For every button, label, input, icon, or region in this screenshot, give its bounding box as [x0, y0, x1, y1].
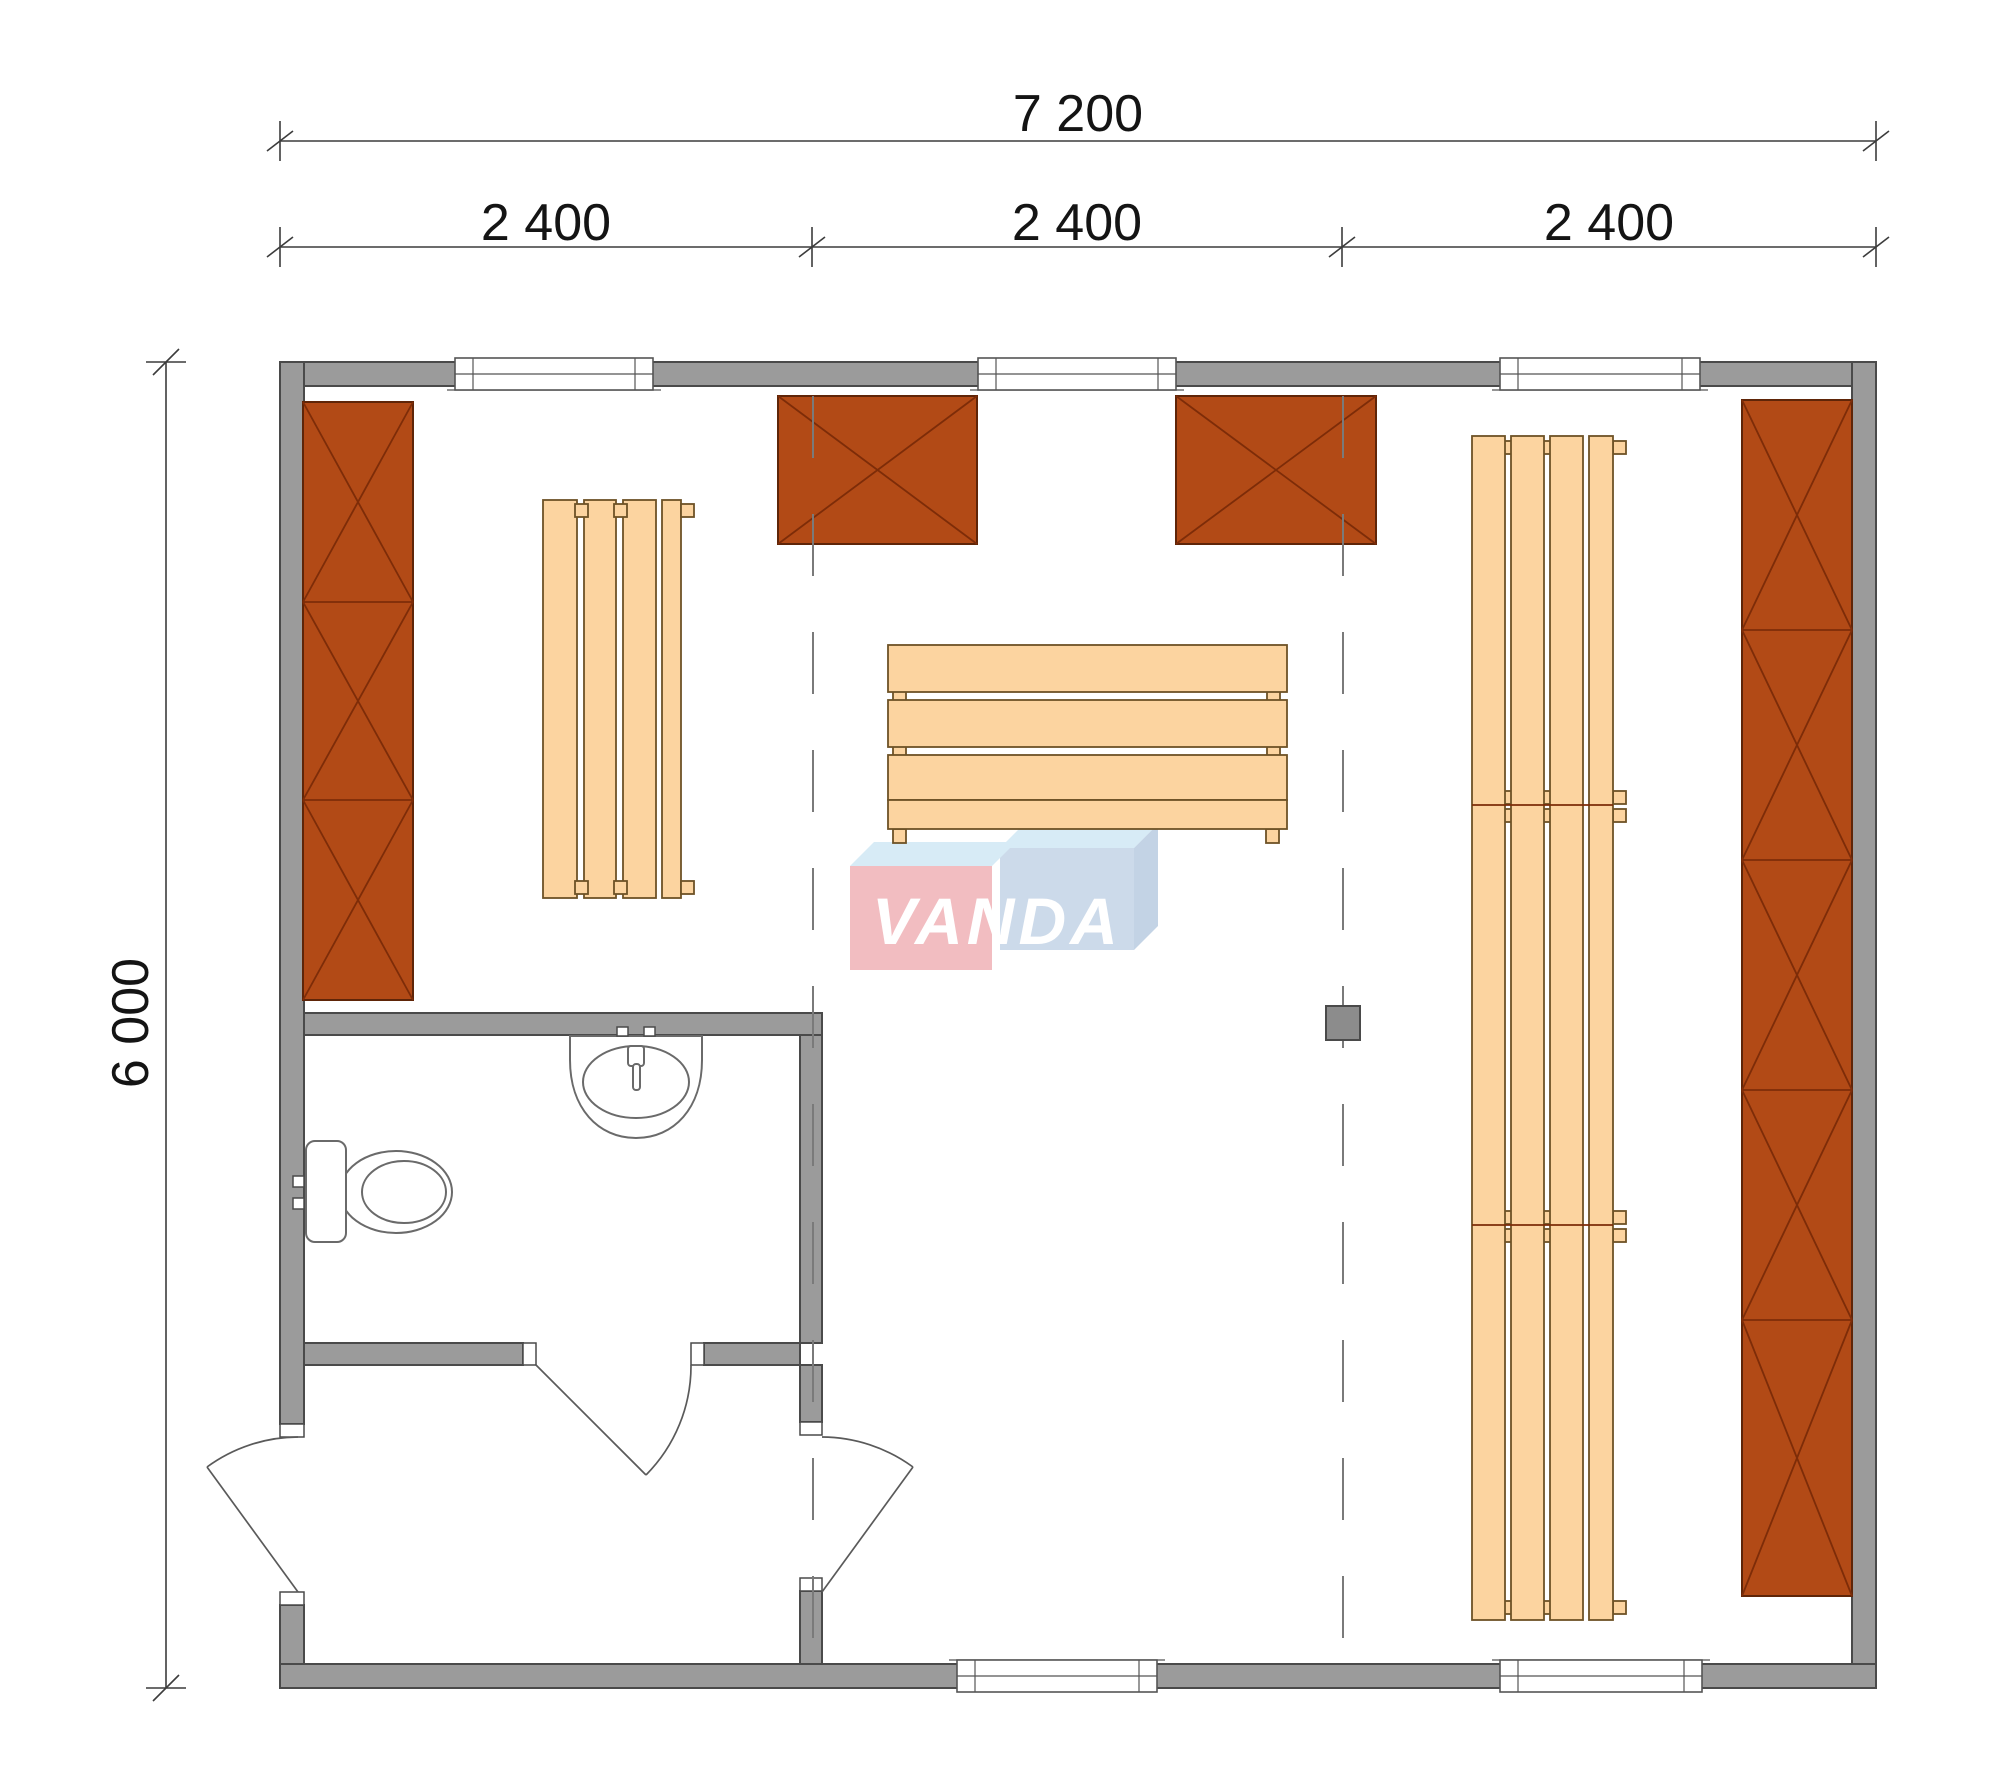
wall-left-upper: [280, 362, 304, 1424]
door-jamb: [523, 1343, 536, 1365]
sink-icon: [570, 1027, 702, 1138]
bathroom-wall-bottom-right: [704, 1343, 800, 1365]
bench-left: [543, 500, 694, 898]
wardrobe-top-left: [778, 396, 977, 544]
dimension-left-total: 6 000: [102, 349, 186, 1701]
dimension-label-total-width: 7 200: [1013, 85, 1143, 143]
dimension-top-total: 7 200: [267, 85, 1889, 161]
wall-left-lower: [280, 1605, 304, 1664]
dimension-label-total-height: 6 000: [102, 958, 160, 1088]
floor-plan-page: 7 200 2 400 2 400 2 400 6 000 VANDA: [0, 0, 2000, 1786]
dimension-modules: 2 400 2 400 2 400: [267, 194, 1889, 267]
window-top-left: [447, 358, 661, 390]
toilet-icon: [293, 1141, 452, 1242]
door-jamb: [800, 1578, 822, 1591]
wall-right: [1852, 362, 1876, 1664]
door-jamb: [691, 1343, 704, 1365]
dimension-label-module-2: 2 400: [1012, 194, 1142, 252]
door-jamb: [800, 1422, 822, 1435]
bathroom-wall-right: [800, 1035, 822, 1343]
hall-wall-right-lower: [800, 1591, 822, 1664]
bathroom-door: [536, 1365, 691, 1475]
window-bottom-right: [1492, 1660, 1710, 1692]
bench-middle: [888, 645, 1287, 843]
window-bottom-middle: [949, 1660, 1165, 1692]
hall-wall-right-upper: [800, 1365, 822, 1422]
interior-door-right: [822, 1437, 913, 1592]
window-top-middle: [970, 358, 1184, 390]
dimension-label-module-1: 2 400: [481, 194, 611, 252]
entrance-door-left: [207, 1437, 298, 1592]
bench-right: [1472, 436, 1626, 1620]
door-jamb: [280, 1592, 304, 1605]
door-jamb: [280, 1424, 304, 1437]
bathroom-wall-bottom-left: [304, 1343, 523, 1365]
floor-plan-drawing: 7 200 2 400 2 400 2 400 6 000 VANDA: [0, 0, 2000, 1786]
logo-block-van-bevel: [850, 842, 1016, 866]
wardrobe-top-right: [1176, 396, 1376, 544]
wardrobe-right-column: [1742, 400, 1852, 1596]
bathroom-wall-top: [304, 1013, 822, 1035]
wardrobe-left-column: [303, 402, 413, 1000]
stove-marker: [1326, 1006, 1360, 1040]
vanda-logo-text: VANDA: [872, 884, 1122, 958]
vanda-logo: VANDA: [850, 824, 1158, 970]
interior-walls: [304, 1013, 822, 1664]
dimension-label-module-3: 2 400: [1544, 194, 1674, 252]
window-top-right: [1492, 358, 1708, 390]
